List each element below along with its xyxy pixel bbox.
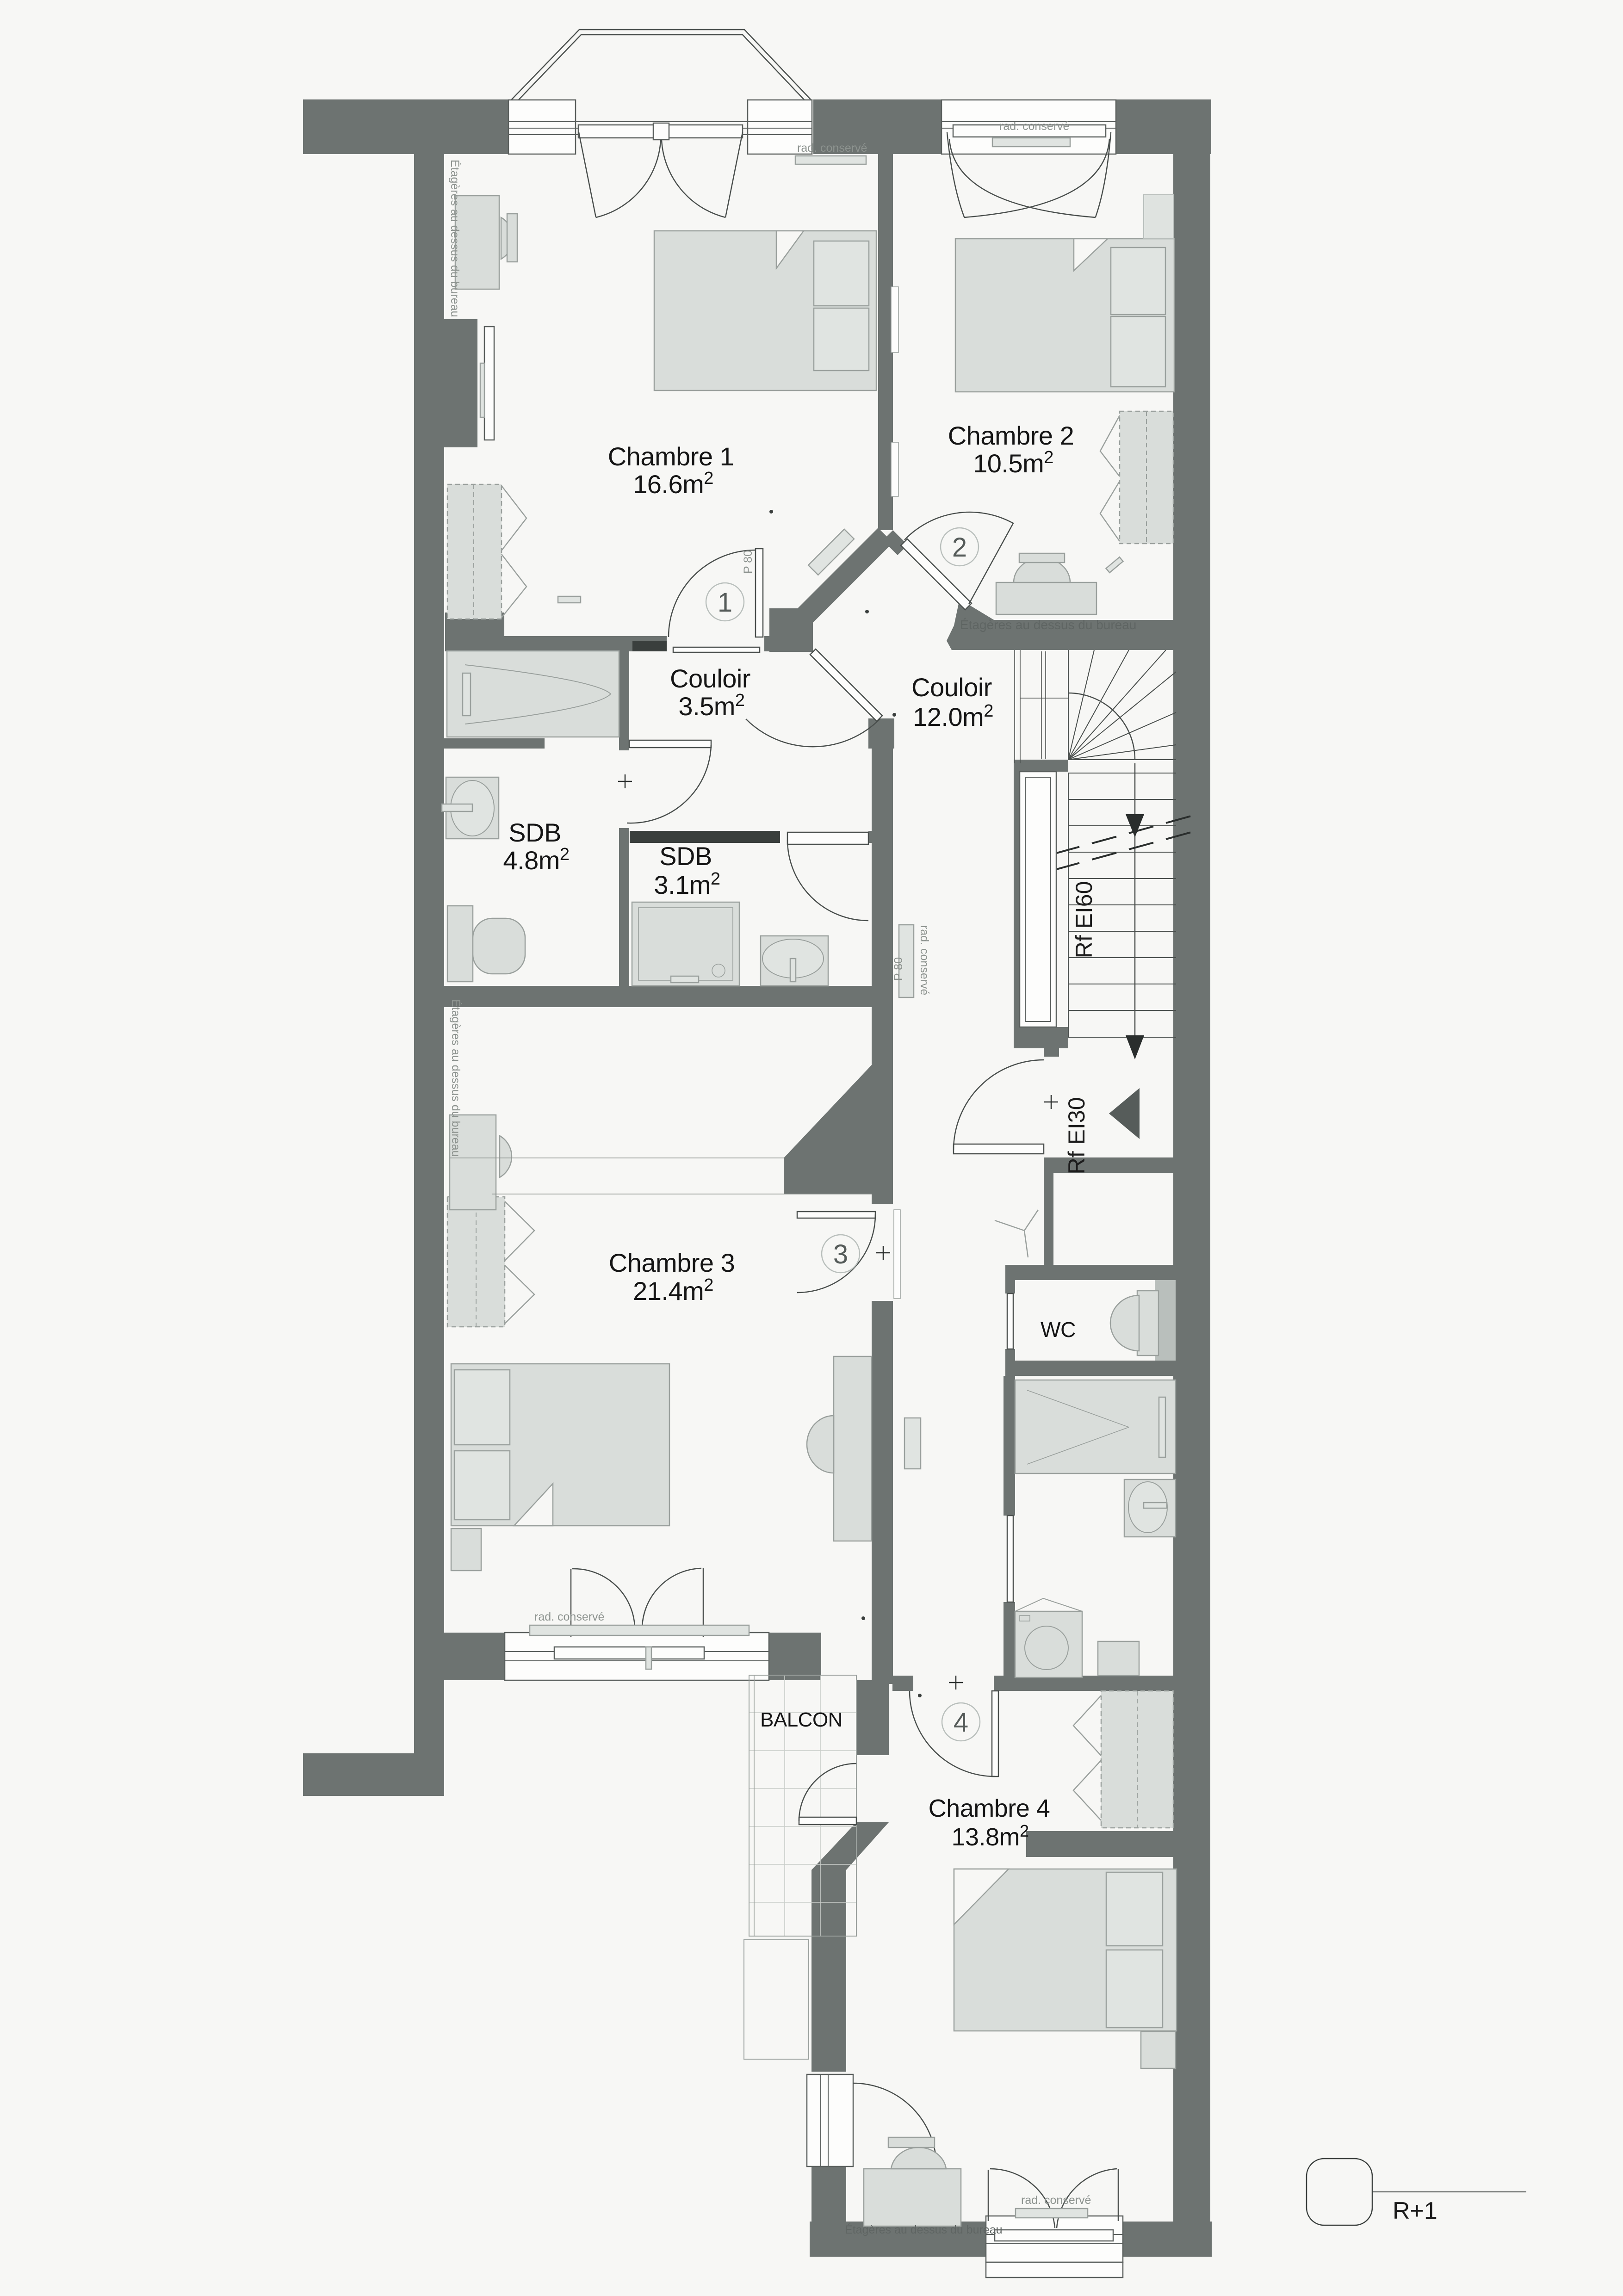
svg-text:Étagères au dessus du bureau: Étagères au dessus du bureau [845,2223,1003,2236]
svg-text:rad. conservé: rad. conservé [534,1610,604,1623]
svg-text:13.8m2: 13.8m2 [951,1821,1028,1851]
svg-text:rad. conservé: rad. conservé [999,120,1069,133]
svg-text:4.8m2: 4.8m2 [503,845,569,875]
svg-text:10.5m2: 10.5m2 [973,448,1053,478]
svg-text:rad. conservé: rad. conservé [918,925,931,995]
svg-text:1: 1 [718,588,732,618]
svg-text:Chambre 1: Chambre 1 [608,442,734,471]
svg-text:Couloir: Couloir [911,673,992,702]
svg-text:Chambre 4: Chambre 4 [929,1795,1050,1822]
svg-text:BALCON: BALCON [760,1708,842,1731]
svg-text:SDB: SDB [659,842,712,871]
svg-text:WC: WC [1041,1318,1076,1342]
svg-text:Étagères au dessus du bureau: Étagères au dessus du bureau [960,618,1136,632]
svg-text:Étagères au dessus du bureau: Étagères au dessus du bureau [449,999,463,1157]
svg-text:Chambre 3: Chambre 3 [609,1248,735,1277]
svg-text:R+1: R+1 [1393,2197,1437,2224]
svg-text:2: 2 [952,532,967,563]
svg-text:Chambre 2: Chambre 2 [948,421,1074,450]
svg-text:rad. conservé: rad. conservé [1021,2194,1091,2207]
svg-text:P 80: P 80 [742,550,755,574]
svg-text:21.4m2: 21.4m2 [633,1275,713,1306]
svg-text:12.0m2: 12.0m2 [913,701,993,731]
svg-text:Étagères au dessus du bureau: Étagères au dessus du bureau [448,160,462,317]
svg-text:rad. conservé: rad. conservé [797,142,867,155]
svg-text:Rf EI30: Rf EI30 [1064,1097,1090,1175]
svg-text:P 80: P 80 [892,957,905,981]
svg-text:Rf EI60: Rf EI60 [1071,881,1097,959]
svg-text:3.5m2: 3.5m2 [678,691,744,721]
svg-text:3: 3 [833,1239,848,1269]
svg-text:3.1m2: 3.1m2 [654,869,720,899]
svg-text:16.6m2: 16.6m2 [633,469,713,499]
svg-text:Couloir: Couloir [670,664,750,693]
svg-text:4: 4 [954,1708,968,1738]
svg-text:SDB: SDB [508,818,561,847]
